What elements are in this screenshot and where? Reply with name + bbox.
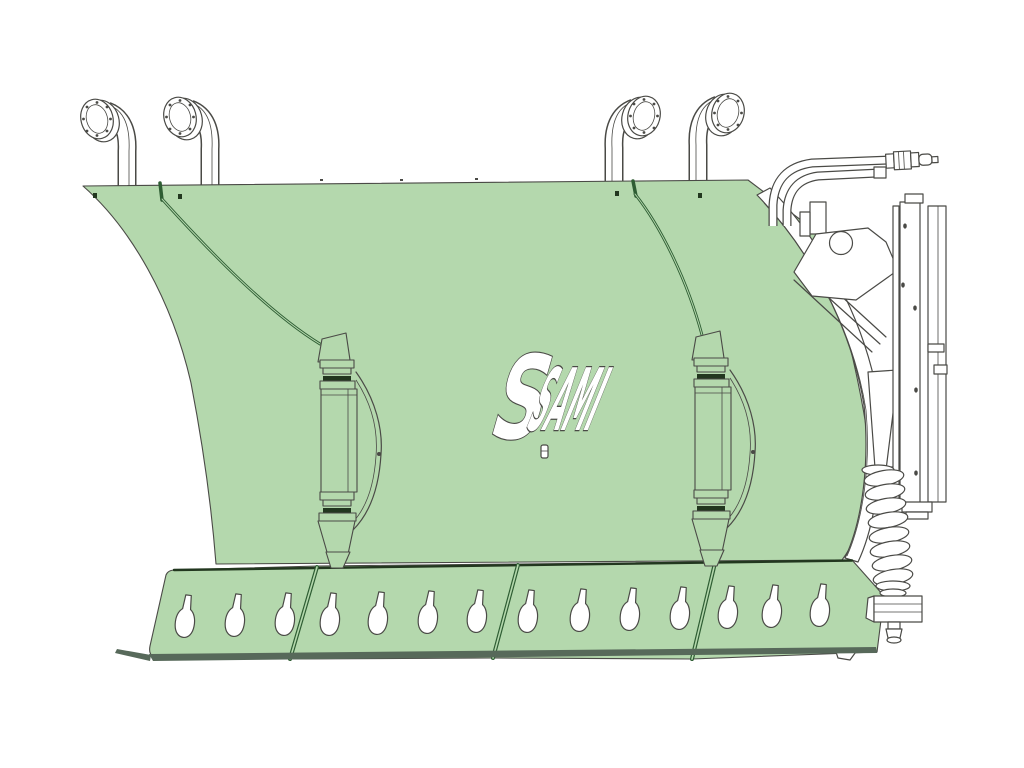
- quick-coupler: [885, 150, 938, 171]
- trip-post-3: [612, 93, 665, 186]
- product-illustration: S SAMI: [0, 0, 1024, 768]
- seam-notch-left: [160, 183, 162, 200]
- trip-post-2: [159, 94, 212, 187]
- moldboard: S SAMI: [83, 178, 869, 568]
- moldboard-surface: [83, 180, 869, 564]
- trip-post-4: [696, 90, 749, 183]
- frame-post: [810, 202, 826, 234]
- mounting-plates: [893, 194, 947, 519]
- snow-plow-drawing: S SAMI: [0, 0, 1024, 768]
- trip-post-1: [76, 96, 129, 189]
- cutting-edge: [150, 550, 884, 660]
- logo-detail-mark: [541, 445, 548, 458]
- trip-post-group: [76, 90, 748, 189]
- hose-fitting: [874, 167, 886, 178]
